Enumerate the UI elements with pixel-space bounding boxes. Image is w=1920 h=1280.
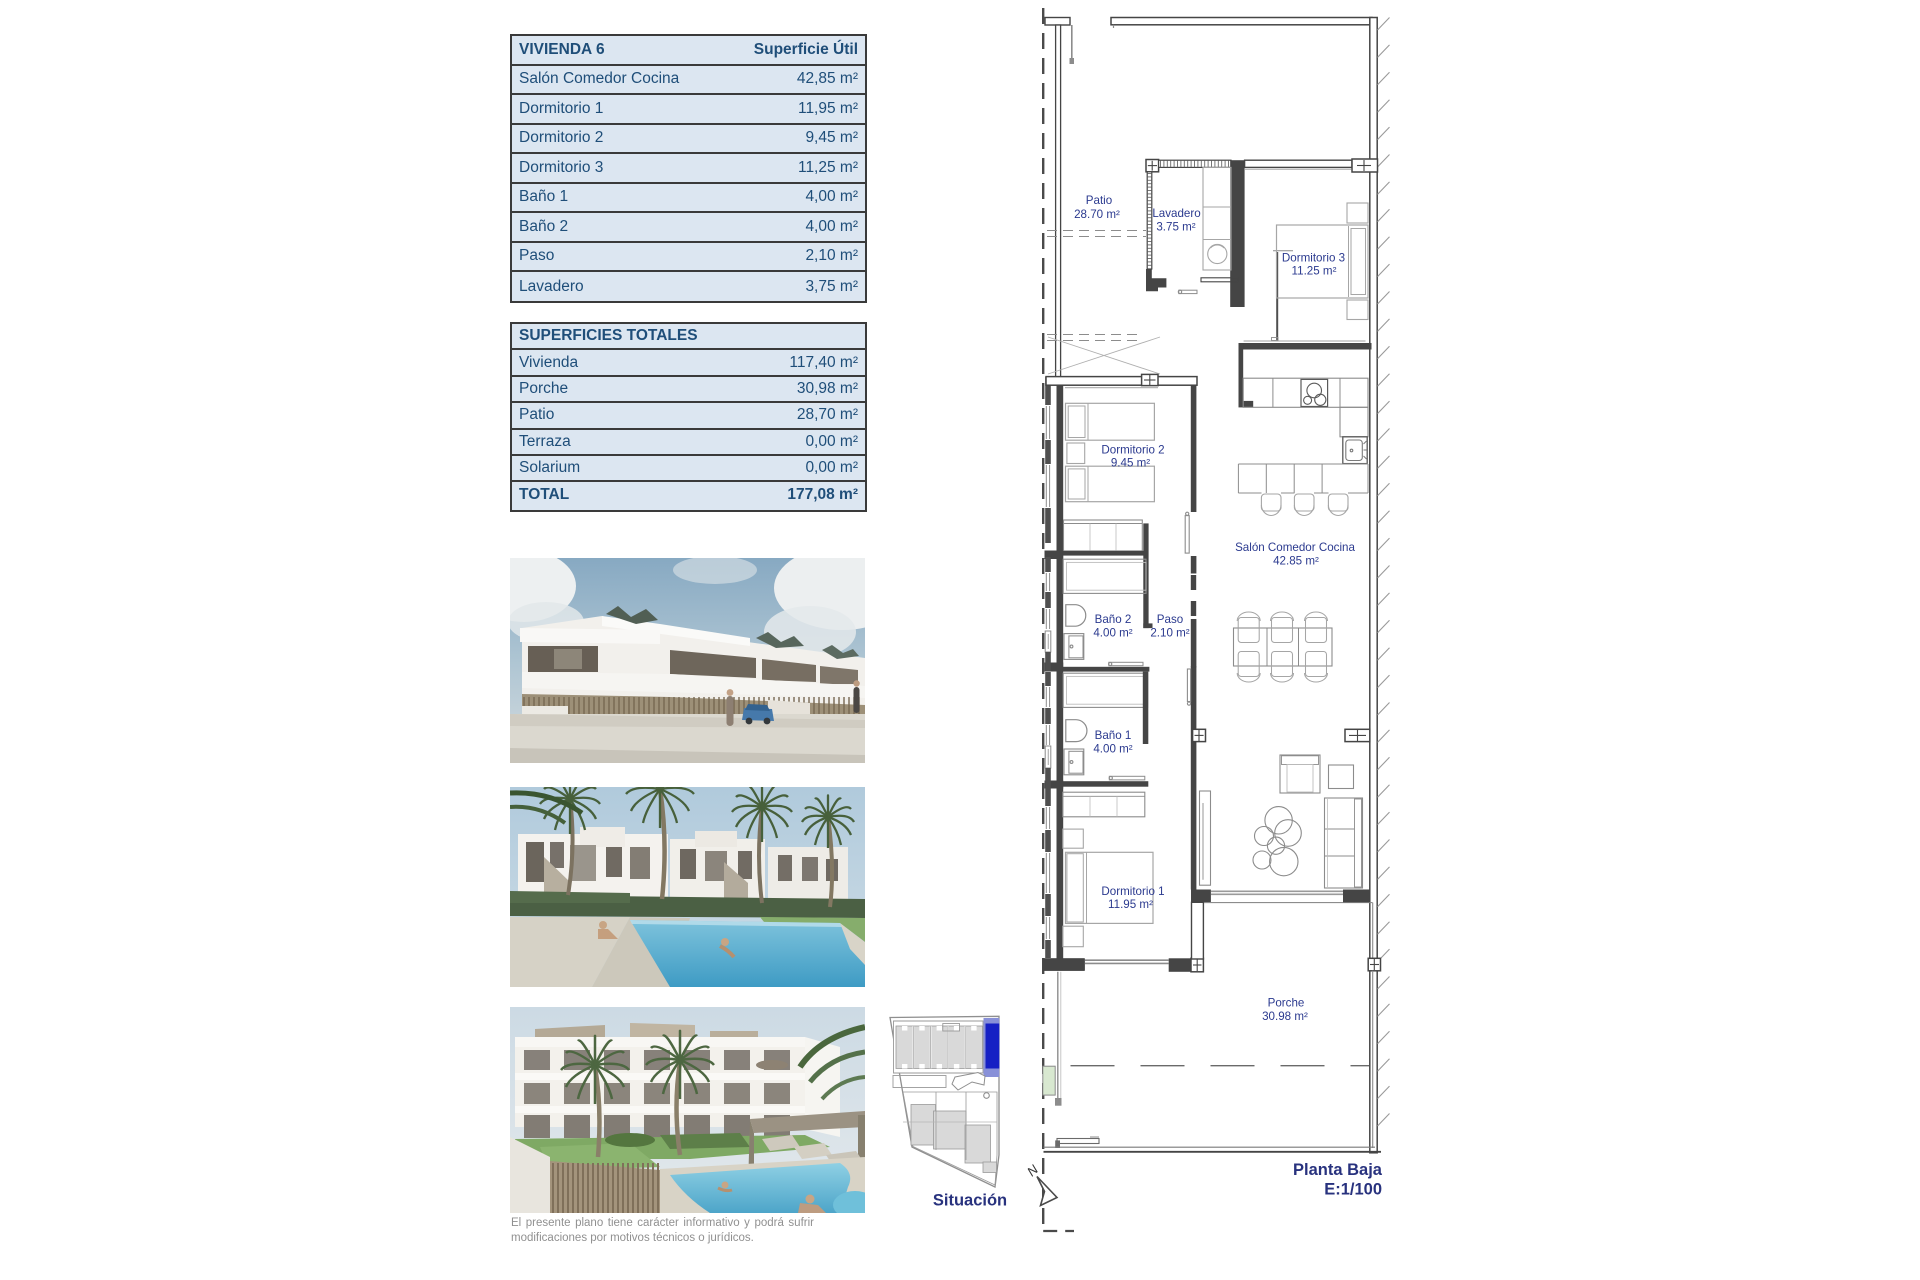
svg-text:3.75 m²: 3.75 m² bbox=[1156, 221, 1195, 234]
svg-text:Salón Comedor Cocina: Salón Comedor Cocina bbox=[1235, 541, 1355, 554]
svg-text:Planta Baja: Planta Baja bbox=[1293, 1161, 1383, 1179]
svg-text:4.00 m²: 4.00 m² bbox=[1093, 627, 1132, 640]
svg-text:N: N bbox=[1024, 1161, 1041, 1179]
svg-text:Situación: Situación bbox=[933, 1192, 1007, 1210]
svg-text:Porche: Porche bbox=[1268, 997, 1305, 1010]
svg-text:11.25 m²: 11.25 m² bbox=[1292, 265, 1337, 278]
svg-text:Dormitorio 3: Dormitorio 3 bbox=[1282, 252, 1345, 265]
svg-text:Baño 1: Baño 1 bbox=[1095, 729, 1132, 742]
svg-text:28.70 m²: 28.70 m² bbox=[1074, 208, 1120, 221]
svg-text:11.95 m²: 11.95 m² bbox=[1108, 898, 1153, 911]
svg-text:4.00 m²: 4.00 m² bbox=[1093, 743, 1132, 756]
svg-text:Lavadero: Lavadero bbox=[1152, 207, 1200, 220]
svg-text:42.85 m²: 42.85 m² bbox=[1273, 555, 1319, 568]
svg-text:Dormitorio 1: Dormitorio 1 bbox=[1101, 885, 1164, 898]
svg-text:30.98 m²: 30.98 m² bbox=[1262, 1010, 1308, 1023]
svg-text:9.45 m²: 9.45 m² bbox=[1111, 457, 1150, 470]
svg-text:Patio: Patio bbox=[1086, 194, 1112, 207]
svg-text:Dormitorio 2: Dormitorio 2 bbox=[1101, 444, 1164, 457]
svg-text:Paso: Paso bbox=[1157, 613, 1183, 626]
svg-text:Baño 2: Baño 2 bbox=[1095, 613, 1132, 626]
svg-text:E:1/100: E:1/100 bbox=[1324, 1181, 1382, 1199]
svg-text:2.10 m²: 2.10 m² bbox=[1150, 627, 1189, 640]
